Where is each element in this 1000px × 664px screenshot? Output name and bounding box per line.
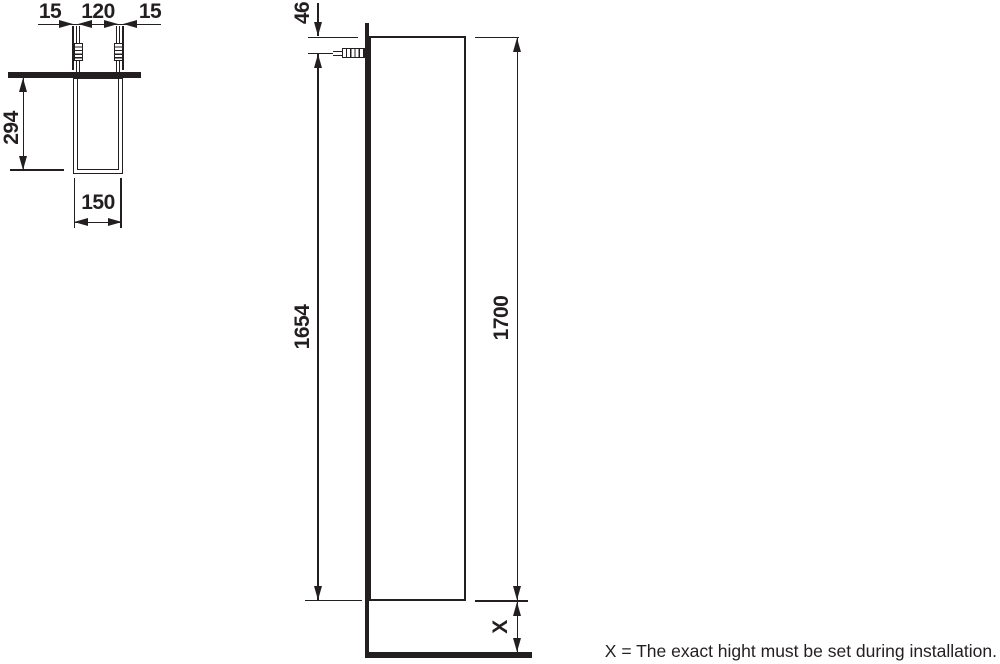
dim-arrow-left-icon [74, 218, 88, 226]
installation-footnote: X = The exact hight must be set during i… [605, 641, 997, 662]
dim-label-depth: 294 [0, 111, 24, 145]
cabinet-outline [369, 36, 466, 601]
dim-arrow-left-icon [78, 20, 92, 28]
dim-label-left-offset: 15 [39, 0, 61, 24]
dim-arrow-up-icon [314, 54, 322, 68]
dim-arrow-right-icon [108, 218, 122, 226]
dim-label-floor-clearance: X [489, 620, 513, 634]
dim-label-right-offset: 15 [139, 0, 161, 24]
dim-arrow-right-icon [59, 20, 73, 28]
extension-line [305, 600, 362, 601]
dim-arrow-down-icon [314, 586, 322, 600]
dim-label-rail-to-bottom: 1654 [291, 305, 315, 350]
extension-line [10, 169, 64, 170]
dim-arrow-down-icon [19, 156, 27, 170]
dim-arrow-down-icon [513, 638, 521, 652]
dim-arrow-left-icon [123, 20, 137, 28]
dimension-line [38, 24, 161, 25]
dim-arrow-up-icon [19, 78, 27, 92]
extension-line [122, 26, 123, 70]
extension-line [308, 37, 358, 38]
dim-arrow-down-icon [513, 586, 521, 600]
dim-label-width: 150 [81, 191, 115, 215]
cabinet-body-inner-outline [77, 78, 119, 170]
dim-arrow-up-icon [513, 602, 521, 616]
dim-label-height: 1700 [490, 296, 514, 341]
dim-label-top-offset: 46 [291, 2, 315, 24]
dimension-line [517, 38, 518, 600]
floor-line [365, 652, 532, 658]
dimension-line [317, 54, 318, 600]
technical-drawing: 15 120 15 294 [0, 0, 1000, 664]
dim-arrow-up-icon [513, 38, 521, 52]
